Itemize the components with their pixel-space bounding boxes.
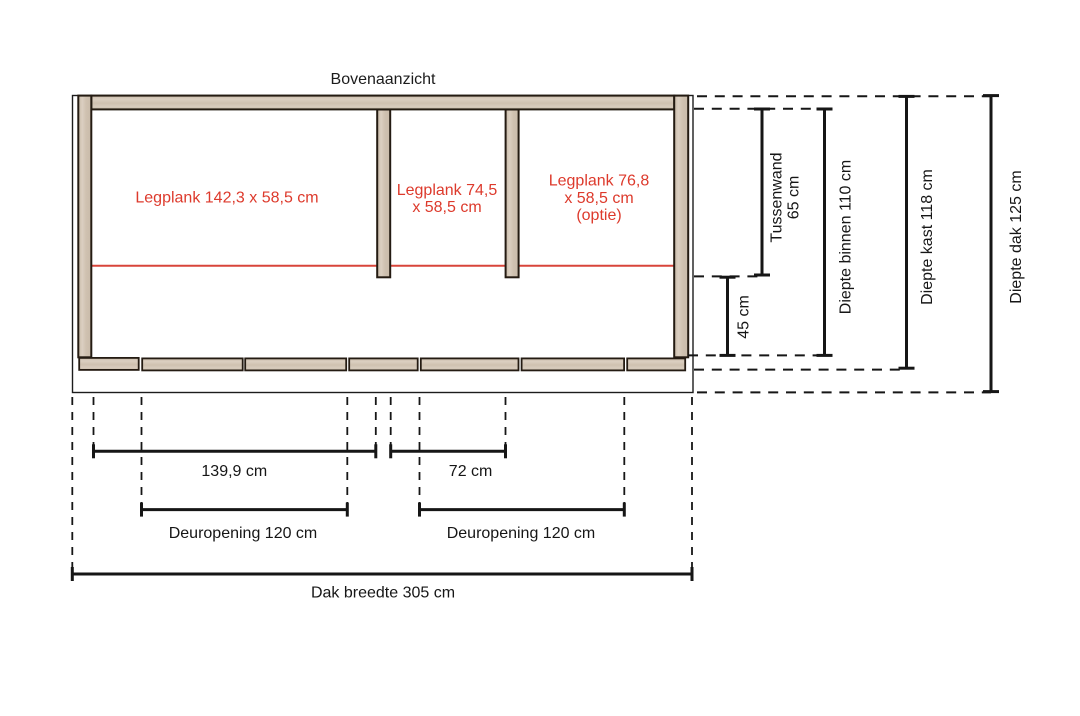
svg-text:Legplank 74,5: Legplank 74,5	[397, 182, 498, 199]
svg-text:Legplank 76,8: Legplank 76,8	[549, 173, 650, 190]
svg-text:72 cm: 72 cm	[449, 463, 493, 480]
svg-text:x 58,5 cm: x 58,5 cm	[564, 190, 633, 207]
svg-text:x 58,5 cm: x 58,5 cm	[412, 199, 481, 216]
svg-text:Legplank 142,3 x 58,5 cm: Legplank 142,3 x 58,5 cm	[135, 190, 318, 207]
svg-text:Deuropening 120 cm: Deuropening 120 cm	[169, 525, 318, 542]
svg-text:(optie): (optie)	[576, 207, 621, 224]
svg-text:139,9 cm: 139,9 cm	[201, 463, 267, 480]
svg-text:Diepte dak 125 cm: Diepte dak 125 cm	[1008, 170, 1025, 303]
svg-text:45 cm: 45 cm	[736, 295, 753, 339]
svg-text:Dak breedte 305 cm: Dak breedte 305 cm	[311, 585, 455, 602]
svg-text:Diepte kast 118 cm: Diepte kast 118 cm	[919, 169, 936, 305]
svg-text:Bovenaanzicht: Bovenaanzicht	[331, 71, 437, 88]
svg-text:Diepte binnen 110 cm: Diepte binnen 110 cm	[838, 160, 855, 314]
svg-text:65 cm: 65 cm	[785, 176, 802, 220]
svg-text:Tussenwand: Tussenwand	[768, 152, 785, 242]
svg-text:Deuropening 120 cm: Deuropening 120 cm	[447, 525, 596, 542]
